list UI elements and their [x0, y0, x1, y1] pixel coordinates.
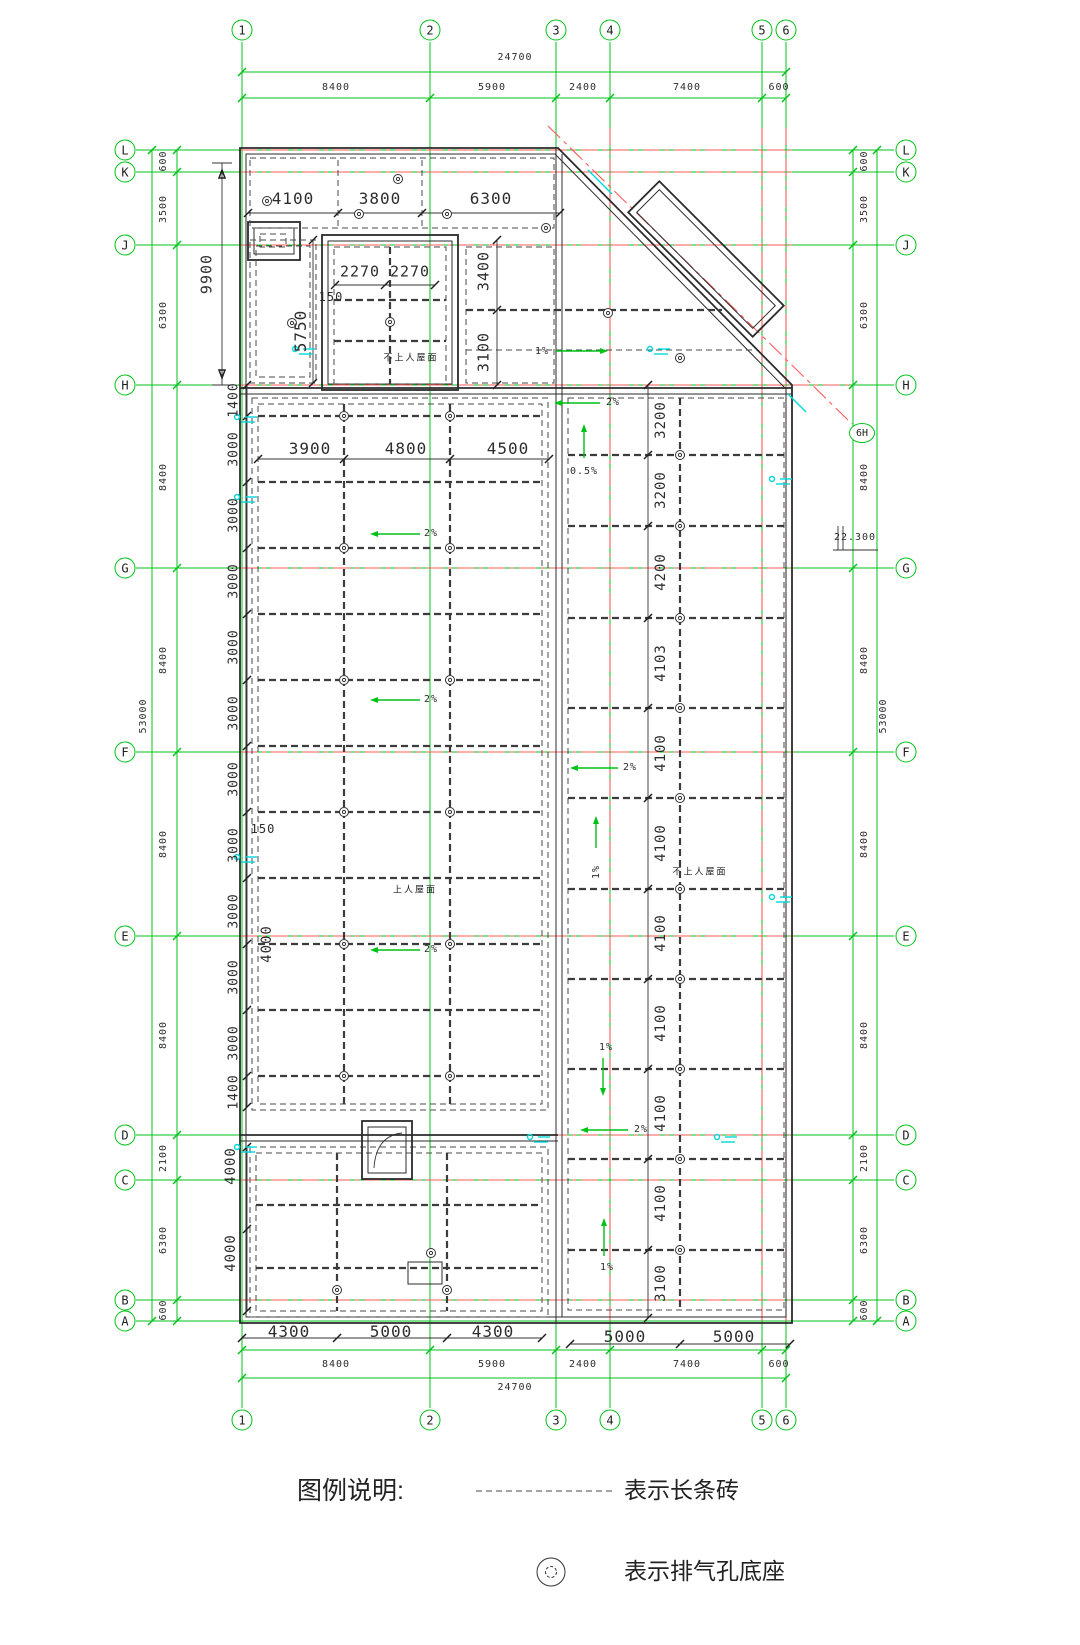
diagonal-canopy [628, 181, 784, 337]
dim-chain-left: 3000 [228, 629, 241, 664]
dim-col-right: 3200 [654, 471, 668, 509]
slope-label: 2% [424, 695, 438, 705]
dim-room: 5750 [293, 310, 309, 353]
dim-top-total: 24700 [497, 53, 532, 63]
dim-parapet: 4000 [260, 925, 274, 963]
dim-bottom-seg: 7400 [673, 1360, 701, 1370]
dim-room: 3400 [477, 251, 492, 291]
dim-chain-left: 3000 [228, 827, 241, 862]
axis-bubble: 6 [776, 20, 797, 41]
axis-bubble: B [896, 1290, 917, 1311]
dim-right: 600 [860, 150, 870, 171]
dim-main: 4800 [385, 441, 428, 457]
dim-chain-left: 3000 [228, 959, 241, 994]
axis-bubble: 5 [752, 20, 773, 41]
axis-bubble: 1 [232, 1410, 253, 1431]
dim-col-right: 3200 [654, 401, 668, 439]
axis-bubble: 2 [420, 20, 441, 41]
dim-room: 2270 [390, 265, 430, 280]
dim-chain-left: 3000 [228, 761, 241, 796]
slope-label: 2% [606, 398, 620, 408]
dim-parapet: 150 [251, 823, 276, 835]
dim-right: 8400 [860, 463, 870, 491]
vent-symbols [263, 175, 685, 1295]
drain-marks [235, 347, 793, 1153]
dim-col-right: 4100 [654, 1004, 668, 1042]
axis-bubble: 6 [776, 1410, 797, 1431]
dim-right: 8400 [860, 830, 870, 858]
dim-top-seg: 600 [768, 83, 789, 93]
slope-label: 2% [424, 529, 438, 539]
dim-top-seg: 5900 [478, 83, 506, 93]
dim-right: 3500 [860, 195, 870, 223]
dim-left: 8400 [159, 463, 169, 491]
dim-col-right: 4100 [654, 824, 668, 862]
dim-chain-left: 3000 [228, 893, 241, 928]
dim-chain-left: 3000 [228, 563, 241, 598]
axis-bubble: H [896, 375, 917, 396]
axis-bubble: 3 [546, 1410, 567, 1431]
axis-bubble: L [115, 140, 136, 161]
dim-left: 6300 [159, 1226, 169, 1254]
dim-right: 2100 [860, 1144, 870, 1172]
axis-bubble: 1 [232, 20, 253, 41]
dim-right: 600 [860, 1299, 870, 1320]
legend-symbols [476, 1491, 616, 1586]
dim-chain-left: 3000 [228, 497, 241, 532]
dim-left: 3500 [159, 195, 169, 223]
axis-bubble: J [115, 235, 136, 256]
axis-bubble: A [115, 1311, 136, 1332]
dim-right-total: 53000 [879, 698, 889, 733]
dim-left: 2100 [159, 1144, 169, 1172]
axis-bubble: 4 [600, 20, 621, 41]
slope-label: 1% [535, 347, 549, 357]
dim-col-right: 4100 [654, 734, 668, 772]
roof-label-right: 不上人屋面 [672, 868, 727, 877]
axis-bubble: 2 [420, 1410, 441, 1431]
axis-bubble: K [115, 162, 136, 183]
dim-top-seg: 2400 [569, 83, 597, 93]
axis-bubble: D [115, 1125, 136, 1146]
dim-col-right: 4100 [654, 914, 668, 952]
dim-chain-left: 3000 [228, 431, 241, 466]
dim-bottom-seg: 2400 [569, 1360, 597, 1370]
axis-bubble: 5 [752, 1410, 773, 1431]
axis-bubble: E [896, 926, 917, 947]
roof-label-top: 不上人屋面 [383, 354, 438, 363]
slope-label: 2% [623, 763, 637, 773]
axis-bubble: H [115, 375, 136, 396]
dim-left: 8400 [159, 1021, 169, 1049]
dim-top-seg: 7400 [673, 83, 701, 93]
axis-bubble: C [115, 1170, 136, 1191]
axis-bubble: A [896, 1311, 917, 1332]
axis-bubble: K [896, 162, 917, 183]
dim-bottom-inner: 5000 [370, 1324, 413, 1340]
slope-label: 2% [424, 945, 438, 955]
dim-col-right: 4200 [654, 553, 668, 591]
axis-bubble: C [896, 1170, 917, 1191]
axis-bubble: 6H [849, 423, 875, 443]
dim-main: 4500 [487, 441, 530, 457]
dim-room: 3100 [477, 332, 492, 372]
roof-plan-canvas: 图例说明: 表示长条砖 表示排气孔底座 112233445566LLKKJJHH… [0, 0, 1080, 1645]
dim-right: 6300 [860, 301, 870, 329]
axis-bubble: E [115, 926, 136, 947]
dim-chain-left: 1400 [228, 1074, 241, 1109]
axis-bubble: D [896, 1125, 917, 1146]
dim-bottom-block: 4000 [224, 1234, 238, 1272]
axis-bubble: F [115, 742, 136, 763]
legend-title: 图例说明: [297, 1479, 404, 1504]
slope-label: 2% [634, 1125, 648, 1135]
axis-bubble: 4 [600, 1410, 621, 1431]
dim-left-total: 53000 [139, 698, 149, 733]
axis-bubble: B [115, 1290, 136, 1311]
dim-bottom-seg: 600 [768, 1360, 789, 1370]
dim-room: 150 [319, 291, 344, 303]
dim-bottom-total: 24700 [497, 1383, 532, 1393]
dim-bottom-block: 4000 [224, 1147, 238, 1185]
axis-bubble: G [115, 558, 136, 579]
dim-bottom-inner: 4300 [472, 1324, 515, 1340]
dim-left: 8400 [159, 830, 169, 858]
dim-right: 8400 [860, 1021, 870, 1049]
axis-bubble: G [896, 558, 917, 579]
slope-label: 0.5% [570, 467, 598, 477]
dim-chain-left: 3000 [228, 1025, 241, 1060]
dim-chain-left: 1400 [228, 382, 241, 417]
dim-left: 6300 [159, 301, 169, 329]
dim-left: 600 [159, 150, 169, 171]
dim-right: 8400 [860, 646, 870, 674]
dim-col-right: 3100 [654, 1264, 668, 1302]
dim-bottom-seg: 8400 [322, 1360, 350, 1370]
legend-item-brick-label: 表示长条砖 [624, 1479, 739, 1502]
slope-label: 1% [599, 1043, 613, 1053]
dim-9900: 9900 [200, 254, 215, 294]
axis-bubble: F [896, 742, 917, 763]
dim-bottom-inner: 5000 [604, 1329, 647, 1345]
dim-main: 3900 [289, 441, 332, 457]
dim-top-seg: 8400 [322, 83, 350, 93]
roof-plan-linework [0, 0, 1080, 1645]
axis-bubble: 3 [546, 20, 567, 41]
dim-room: 6300 [470, 191, 513, 207]
dim-col-right: 4100 [654, 1184, 668, 1222]
elevation-mark: 22.300 [834, 533, 876, 543]
dim-room: 3800 [359, 191, 402, 207]
dim-room: 4100 [272, 191, 315, 207]
roof-label-main: 上人屋面 [393, 886, 437, 895]
dim-left: 8400 [159, 646, 169, 674]
axis-bubble: L [896, 140, 917, 161]
dim-col-right: 4103 [654, 644, 668, 682]
slope-label: 1% [600, 1263, 614, 1273]
dim-bottom-inner: 4300 [268, 1324, 311, 1340]
dim-bottom-seg: 5900 [478, 1360, 506, 1370]
dim-room: 2270 [340, 265, 380, 280]
axis-bubble: J [896, 235, 917, 256]
brick-grid [250, 158, 784, 1317]
dim-right: 6300 [860, 1226, 870, 1254]
dim-left: 600 [159, 1299, 169, 1320]
dim-col-right: 4100 [654, 1094, 668, 1132]
dim-bottom-inner: 5000 [713, 1329, 756, 1345]
dim-chain-left: 3000 [228, 695, 241, 730]
dimension-lines [212, 163, 878, 1348]
legend-item-vent-label: 表示排气孔底座 [624, 1560, 785, 1583]
slope-label: 1% [592, 865, 602, 879]
slope-arrows [370, 348, 628, 1256]
